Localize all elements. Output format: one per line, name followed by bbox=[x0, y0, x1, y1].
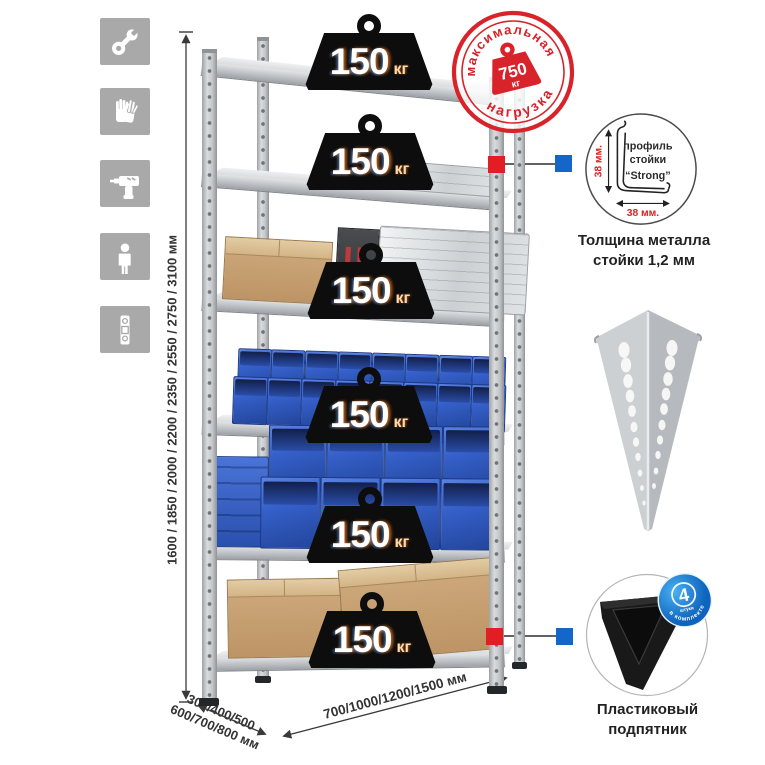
svg-text:“Strong”: “Strong” bbox=[625, 170, 671, 182]
load-unit: кг bbox=[395, 161, 410, 179]
profile-callout-circle: 38 мм. 38 мм. профиль стойки “Strong” bbox=[582, 112, 700, 230]
plastic-foot bbox=[512, 662, 527, 669]
shelf-load-badge: 150кг bbox=[304, 114, 436, 190]
depth-dimension-label: 300/400/500 600/700/800 мм bbox=[147, 678, 288, 761]
quantity-badge: 4 штуки в комплекте bbox=[652, 567, 721, 636]
svg-text:стойки: стойки bbox=[630, 154, 666, 166]
width-dimension-label: 700/1000/1200/1500 мм bbox=[301, 664, 488, 728]
load-unit: кг bbox=[394, 414, 409, 432]
svg-text:профиль: профиль bbox=[623, 140, 673, 152]
shelf-load-badge: 150кг bbox=[303, 14, 435, 90]
drill-icon bbox=[100, 160, 150, 207]
load-value: 150 bbox=[330, 43, 389, 80]
rack-post-back-right bbox=[514, 68, 525, 666]
plastic-foot bbox=[255, 676, 271, 683]
product-infographic: 1600 / 1850 / 2000 / 2200 / 2350 / 2550 … bbox=[0, 0, 765, 765]
shelf-load-badge: 150кг bbox=[306, 592, 438, 668]
shelf-load-badge: 150кг bbox=[305, 243, 437, 319]
profile-dim-horizontal: 38 мм. bbox=[627, 208, 660, 219]
load-value: 150 bbox=[331, 516, 390, 553]
shelf-load-badge: 150кг bbox=[303, 367, 435, 443]
callout-marker-red-top bbox=[488, 156, 505, 173]
shelf-load-badge: 150кг bbox=[304, 487, 436, 563]
storage-bin bbox=[266, 377, 303, 426]
callout-marker-blue-top bbox=[555, 155, 572, 172]
rack-post-front-left bbox=[202, 52, 217, 702]
profile-caption: Толщина металла стойки 1,2 мм bbox=[558, 231, 730, 272]
load-unit: кг bbox=[395, 534, 410, 552]
callout-marker-blue-bottom bbox=[556, 628, 573, 645]
corner-post-image bbox=[591, 298, 706, 538]
gloves-icon bbox=[100, 88, 150, 135]
load-value: 150 bbox=[331, 143, 390, 180]
plastic-foot bbox=[199, 698, 219, 706]
storage-bin bbox=[436, 383, 473, 432]
person-icon bbox=[100, 233, 150, 280]
load-value: 150 bbox=[330, 396, 389, 433]
profile-label: профиль стойки “Strong” bbox=[623, 140, 673, 182]
max-load-stamp: максимальная нагрузка 750 кг bbox=[433, 0, 593, 152]
load-unit: кг bbox=[396, 290, 411, 308]
level-icon bbox=[100, 306, 150, 353]
load-unit: кг bbox=[394, 61, 409, 79]
storage-bin bbox=[232, 376, 269, 425]
plastic-foot bbox=[487, 686, 507, 694]
load-value: 150 bbox=[332, 272, 391, 309]
profile-dim-vertical: 38 мм. bbox=[594, 145, 605, 178]
load-value: 150 bbox=[333, 621, 392, 658]
callout-marker-red-bottom bbox=[486, 628, 503, 645]
load-unit: кг bbox=[397, 639, 412, 657]
wrench-icon bbox=[100, 18, 150, 65]
foot-caption: Пластиковый подпятник bbox=[565, 700, 730, 741]
